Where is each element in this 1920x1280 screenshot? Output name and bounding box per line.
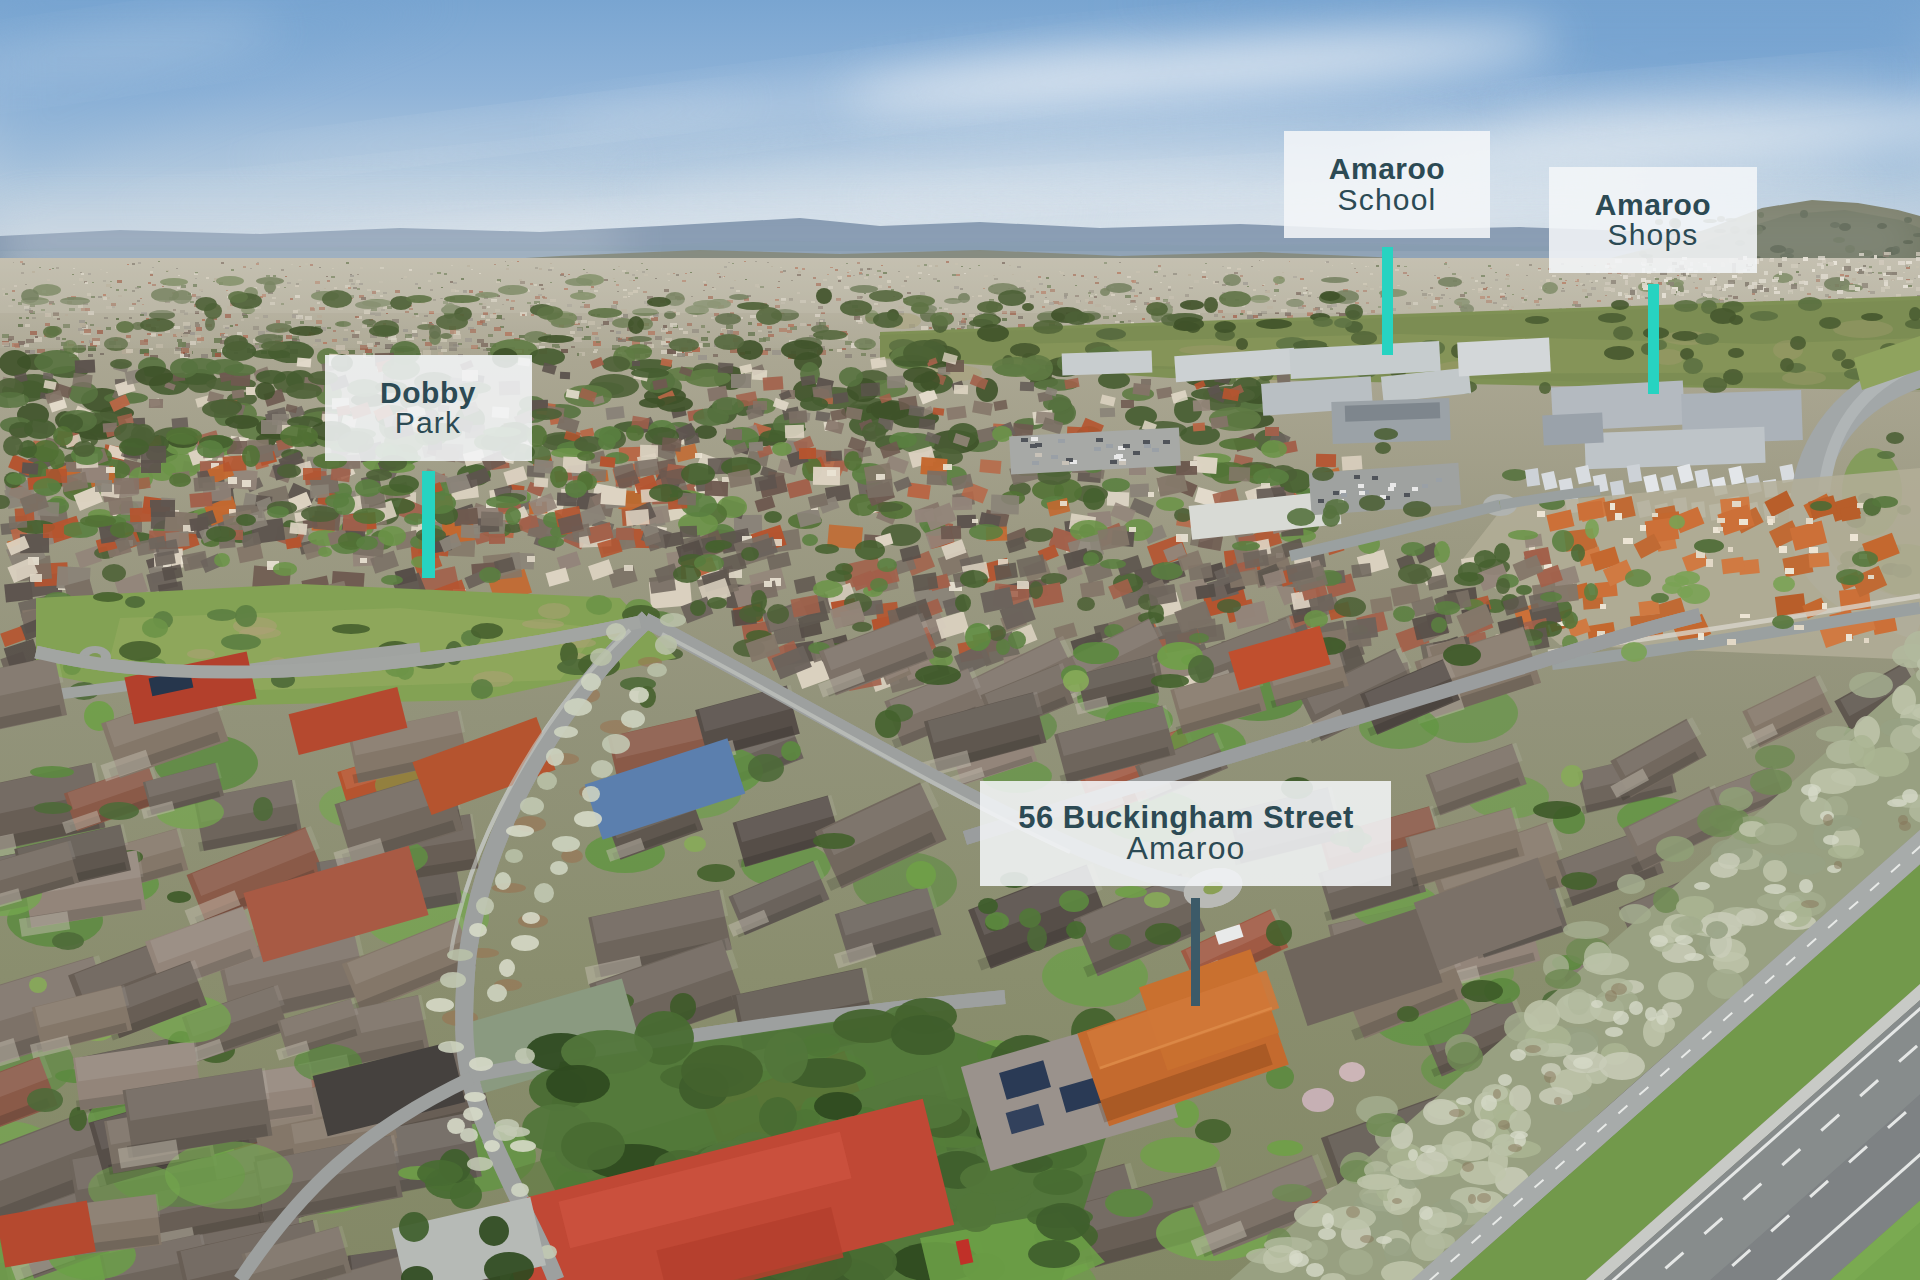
svg-text:Dobby: Dobby xyxy=(380,376,476,409)
svg-text:Amaroo: Amaroo xyxy=(1595,188,1711,221)
svg-text:Amaroo: Amaroo xyxy=(1126,830,1245,866)
svg-text:Park: Park xyxy=(395,406,462,439)
svg-text:Amaroo: Amaroo xyxy=(1329,152,1445,185)
svg-text:School: School xyxy=(1338,183,1437,216)
svg-text:Shops: Shops xyxy=(1607,218,1698,251)
